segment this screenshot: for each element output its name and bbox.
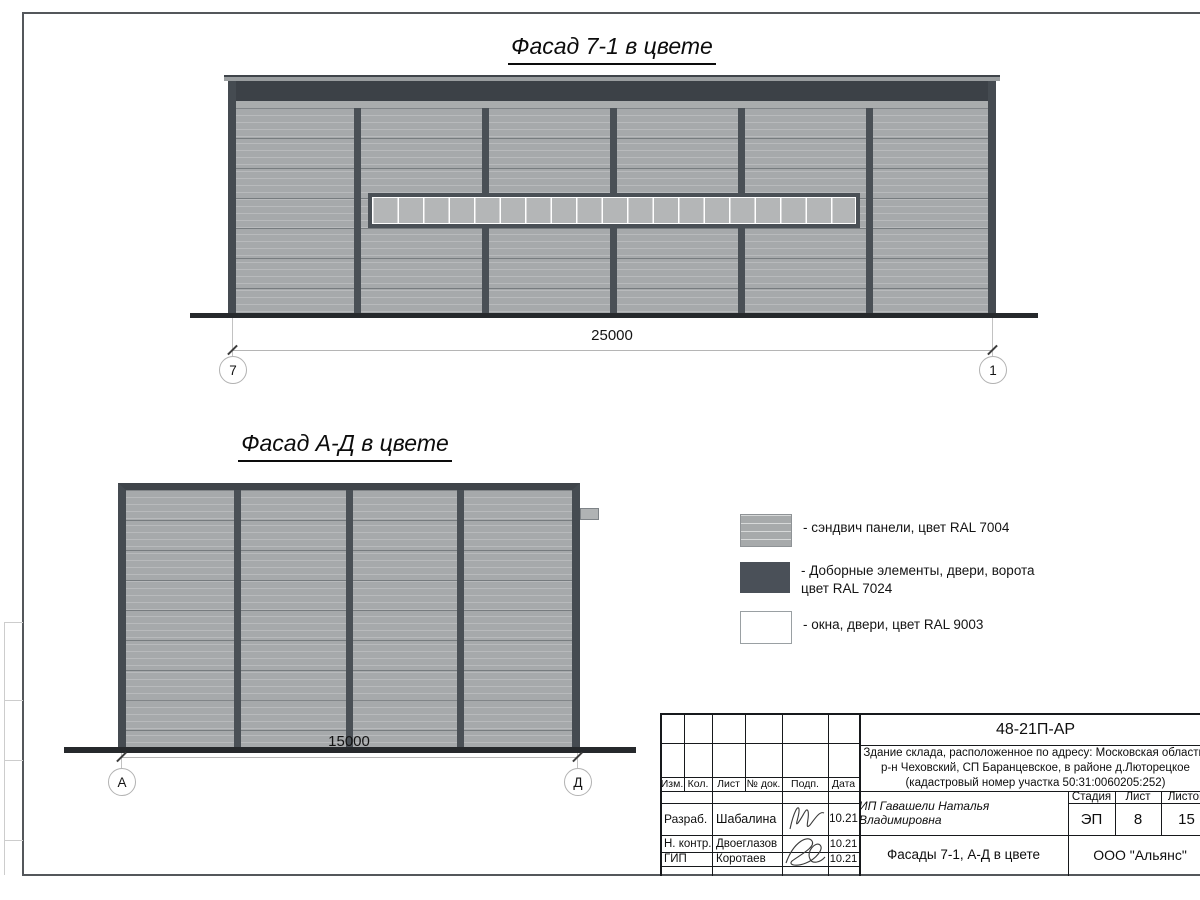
row-role-razrab: Разраб. [660, 803, 712, 835]
signature-gip [782, 833, 828, 871]
legend-label-line1: - Доборные элементы, двери, ворота [801, 562, 1035, 580]
facade-mullion [866, 108, 873, 315]
facade-mullion [346, 490, 353, 750]
legend-label-line2: цвет RAL 7024 [801, 580, 1035, 598]
project-line3: (кадастровый номер участка 50:31:0060205… [905, 776, 1165, 791]
doc-number: 48-21П-АР [859, 715, 1200, 745]
sheet-value: 8 [1115, 803, 1161, 835]
facade-a-d-title: Фасад А-Д в цвете [120, 430, 570, 462]
dimension-label-25000: 25000 [232, 327, 992, 344]
window-strip [368, 193, 860, 228]
legend-item-dark-elements: - Доборные элементы, двери, ворота цвет … [740, 562, 1035, 598]
sheets-value: 15 [1161, 803, 1200, 835]
stage-header: Стадия [1068, 791, 1115, 803]
titleblock-line [660, 866, 859, 867]
titleblock-line [660, 743, 859, 744]
row-role-nkontr: Н. контр. [660, 835, 712, 852]
downspout-outlet [580, 508, 599, 520]
signature-razrab [784, 801, 828, 835]
row-date: 10.21 [828, 835, 859, 852]
facade-mullion [354, 108, 361, 315]
facade-mullion [234, 490, 241, 750]
header-list: Лист [712, 777, 745, 791]
grid-bubble-a: А [108, 768, 136, 796]
margin-stamp-line [4, 760, 23, 761]
row-name-korotaev: Коротаев [712, 852, 782, 866]
flashing-strip [236, 101, 988, 108]
parapet-band [236, 81, 988, 101]
row-date: 10.21 [828, 803, 859, 835]
sheet-header: Лист [1115, 791, 1161, 803]
row-name-dvoeglazov: Двоеглазов [712, 835, 782, 852]
grid-bubble-1: 1 [979, 356, 1007, 384]
facade-7-1-drawing [228, 81, 996, 315]
legend-label: - сэндвич панели, цвет RAL 7004 [803, 514, 1009, 537]
sheets-header: Листов [1161, 791, 1200, 803]
grid-bubble-7: 7 [219, 356, 247, 384]
facade-7-1-title: Фасад 7-1 в цвете [362, 33, 862, 65]
grid-bubble-d: Д [564, 768, 592, 796]
sheet-title: Фасады 7-1, А-Д в цвете [859, 835, 1068, 874]
row-date: 10.21 [828, 852, 859, 866]
title-block: Изм. Кол. Лист № док. Подп. Дата Разраб.… [660, 713, 1200, 876]
extension-line [992, 318, 993, 358]
dimension-label-15000: 15000 [121, 733, 577, 750]
margin-stamp-line [4, 700, 23, 701]
legend-swatch-white [740, 611, 792, 644]
legend-swatch-dark [740, 562, 790, 593]
row-role-gip: ГИП [660, 852, 712, 866]
margin-stamp-line [4, 840, 23, 841]
margin-stamp-line [4, 622, 5, 875]
legend-label: - Доборные элементы, двери, ворота цвет … [801, 562, 1035, 598]
ground-line-facade-7-1 [190, 313, 1038, 318]
margin-stamp-line [4, 622, 23, 623]
legend-swatch-panel [740, 514, 792, 547]
stage-value: ЭП [1068, 803, 1115, 835]
client-name: ИП Гавашели Наталья Владимировна [859, 791, 1068, 835]
legend-item-panels: - сэндвич панели, цвет RAL 7004 [740, 514, 1009, 547]
project-line2: р-н Чеховский, СП Баранцевское, в районе… [881, 761, 1190, 776]
facade-a-d-title-text: Фасад А-Д в цвете [238, 430, 452, 462]
header-podp: Подп. [782, 777, 828, 791]
drawing-sheet: { "titles": { "facade1": "Фасад 7-1 в цв… [0, 0, 1200, 900]
legend-label: - окна, двери, цвет RAL 9003 [803, 611, 983, 634]
facade-mullion [457, 490, 464, 750]
header-kol: Кол. [684, 777, 712, 791]
row-name-shabalina: Шабалина [712, 803, 782, 835]
dimension-line-15000 [121, 757, 577, 758]
project-description: Здание склада, расположенное по адресу: … [859, 745, 1200, 791]
dimension-line-25000 [232, 350, 992, 351]
header-izm: Изм. [660, 777, 684, 791]
facade-a-d-drawing [118, 483, 580, 750]
header-data: Дата [828, 777, 859, 791]
header-doc: № док. [745, 777, 782, 791]
legend-item-windows: - окна, двери, цвет RAL 9003 [740, 611, 983, 644]
facade-7-1-title-text: Фасад 7-1 в цвете [508, 33, 716, 65]
sheet-frame-top [23, 12, 1200, 14]
sheet-frame-left [22, 12, 24, 876]
organization-name: ООО "Альянс" [1068, 835, 1200, 874]
project-line1: Здание склада, расположенное по адресу: … [863, 746, 1200, 761]
